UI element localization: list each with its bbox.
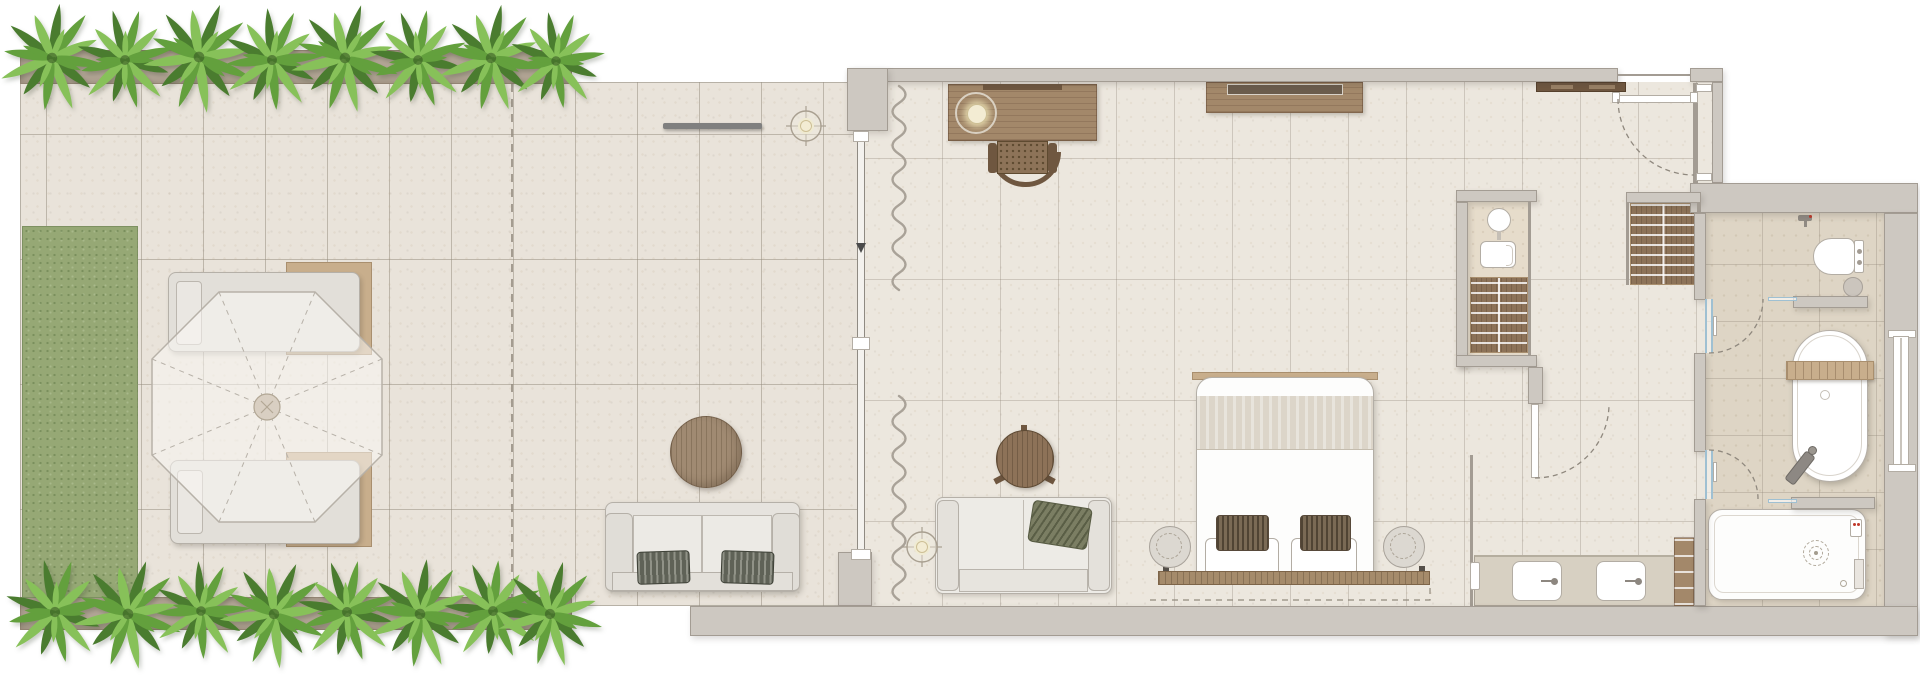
curtain-lower: [893, 396, 906, 600]
bath-door-swing: [1709, 450, 1758, 499]
slide-direction-arrow: [856, 243, 866, 253]
ceiling-light-outdoor: [786, 106, 826, 146]
curtain-upper: [893, 86, 906, 290]
entry-door-swing: [1618, 99, 1694, 175]
corridor-door-swing: [1535, 404, 1609, 478]
bath-door-swing: [1709, 299, 1763, 353]
plants-bottom-row: [0, 544, 615, 675]
plant-icon: [220, 4, 328, 114]
plant-icon: [0, 0, 114, 118]
plants-top-row: [0, 0, 612, 128]
overlay-graphics: [0, 0, 1920, 675]
plant-icon: [0, 549, 117, 672]
plant-icon: [153, 559, 253, 662]
floor-plan-canvas: [0, 0, 1920, 675]
parasol: [152, 292, 382, 522]
plant-icon: [358, 0, 482, 121]
bed-ceiling-dashed: [1150, 586, 1430, 600]
floor-lamp-indoor: [902, 527, 942, 567]
plant-icon: [364, 553, 482, 673]
